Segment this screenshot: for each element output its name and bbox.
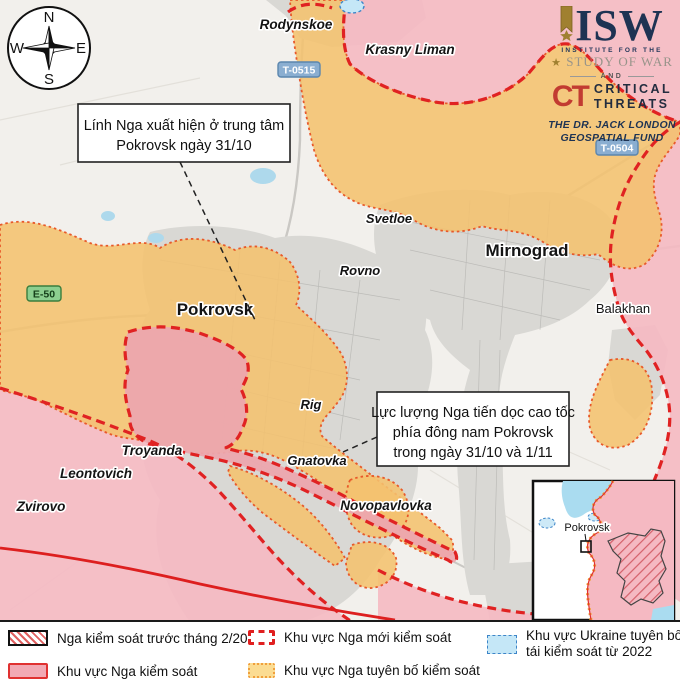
label-mirnograd: Mirnograd	[485, 241, 568, 260]
isw-wordmark-line1: INSTITUTE FOR THE	[548, 47, 676, 54]
legend-item-claimed: Khu vực Nga tuyên bố kiểm soát	[248, 663, 480, 678]
isw-ribbon-icon	[560, 6, 573, 42]
compass-n: N	[44, 9, 55, 26]
compass-s: S	[44, 71, 54, 88]
svg-text:phía đông nam Pokrovsk: phía đông nam Pokrovsk	[393, 425, 554, 441]
legend-swatch-pre2022	[8, 630, 48, 646]
legend-label-new-control: Khu vực Nga mới kiểm soát	[284, 630, 451, 645]
legend-swatch-new-control	[248, 630, 275, 645]
label-leontovich: Leontovich	[60, 466, 132, 481]
legend-label-ukraine-line1: Khu vực Ukraine tuyên bố	[526, 628, 680, 643]
legend-item-pre2022: Nga kiểm soát trước tháng 2/2022	[8, 630, 263, 646]
legend-item-new-control: Khu vực Nga mới kiểm soát	[248, 630, 451, 645]
label-zvirovo: Zvirovo	[16, 499, 66, 514]
legend-item-controlled: Khu vực Nga kiểm soát	[8, 663, 197, 679]
inset-pokrovsk-label: Pokrovsk	[564, 522, 610, 534]
fund-line1: THE DR. JACK LONDON	[548, 119, 676, 131]
svg-text:trong ngày 31/10 và 1/11: trong ngày 31/10 và 1/11	[393, 445, 552, 461]
label-rodynskoe: Rodynskoe	[260, 17, 333, 32]
inset-reclaimed-1	[539, 518, 555, 528]
annotation-box-2: Lực lượng Nga tiến dọc cao tốc phía đông…	[371, 392, 575, 466]
legend-swatch-controlled	[8, 663, 48, 679]
legend: Nga kiểm soát trước tháng 2/2022 Khu vực…	[0, 620, 680, 696]
isw-star-icon: ★	[551, 57, 562, 69]
ct-monogram-icon: CT	[552, 83, 588, 111]
geospatial-fund-credit: THE DR. JACK LONDON GEOSPATIAL FUND	[548, 119, 676, 145]
isw-study-of-war: STUDY OF WAR	[566, 54, 673, 69]
isw-acronym: ISW	[575, 6, 664, 46]
legend-label-claimed: Khu vực Nga tuyên bố kiểm soát	[284, 663, 480, 678]
ukraine-reclaimed-patch	[340, 0, 364, 13]
annotation-box-1: Lính Nga xuất hiện ở trung tâm Pokrovsk …	[78, 104, 290, 162]
legend-swatch-claimed	[248, 663, 275, 678]
isw-wordmark-line2: ★ STUDY OF WAR	[548, 54, 676, 70]
fund-line2: GEOSPATIAL FUND	[560, 132, 663, 144]
legend-label-controlled: Khu vực Nga kiểm soát	[57, 664, 197, 679]
logo-block: ISW INSTITUTE FOR THE ★ STUDY OF WAR AND…	[548, 6, 676, 145]
compass-e: E	[76, 40, 86, 57]
legend-swatch-ukraine	[487, 635, 517, 654]
label-krasny-liman: Krasny Liman	[365, 42, 454, 57]
label-novopavlovka: Novopavlovka	[340, 498, 432, 513]
label-rovno: Rovno	[340, 263, 381, 278]
legend-label-pre2022: Nga kiểm soát trước tháng 2/2022	[57, 631, 263, 646]
label-balakhan: Balakhan	[596, 301, 650, 316]
label-pokrovsk: Pokrovsk	[177, 300, 254, 319]
label-svetloe: Svetloe	[366, 211, 412, 226]
annotation1-line1: Lính Nga xuất hiện ở trung tâm	[84, 118, 285, 134]
logo-and-text: AND	[548, 73, 676, 80]
label-rig: Rig	[301, 397, 322, 412]
annotation2-line1: Lực lượng Nga tiến dọc cao tốc	[371, 405, 575, 421]
e50-shield-label: E-50	[33, 289, 55, 301]
inset-map: Pokrovsk	[533, 481, 674, 620]
annotation2-line2: phía đông nam Pokrovsk	[393, 425, 554, 441]
t0515-shield-label: T-0515	[283, 65, 316, 77]
ct-word-threats: THREATS	[594, 97, 670, 111]
svg-text:Pokrovsk ngày 31/10: Pokrovsk ngày 31/10	[116, 138, 251, 154]
legend-label-ukraine: Khu vực Ukraine tuyên bố tái kiểm soát t…	[526, 628, 680, 660]
compass-rose: N E S W	[8, 7, 90, 89]
compass-w: W	[10, 40, 25, 57]
map-screenshot: E-50 T-0515 T-0504 Rodynskoe Krasny Lima…	[0, 0, 680, 696]
annotation1-line2: Pokrovsk ngày 31/10	[116, 138, 251, 154]
svg-text:Lực lượng Nga tiến dọc cao tốc: Lực lượng Nga tiến dọc cao tốc	[371, 405, 575, 421]
svg-text:Lính Nga xuất hiện ở trung tâm: Lính Nga xuất hiện ở trung tâm	[84, 118, 285, 134]
ct-word-critical: CRITICAL	[594, 82, 672, 96]
ct-wordmark: CRITICAL THREATS	[594, 82, 672, 112]
label-gnatovka: Gnatovka	[287, 453, 346, 468]
label-troyanda: Troyanda	[122, 443, 183, 458]
legend-item-ukraine: Khu vực Ukraine tuyên bố tái kiểm soát t…	[487, 628, 680, 660]
legend-label-ukraine-line2: tái kiểm soát từ 2022	[526, 644, 652, 659]
annotation2-line3: trong ngày 31/10 và 1/11	[393, 445, 552, 461]
